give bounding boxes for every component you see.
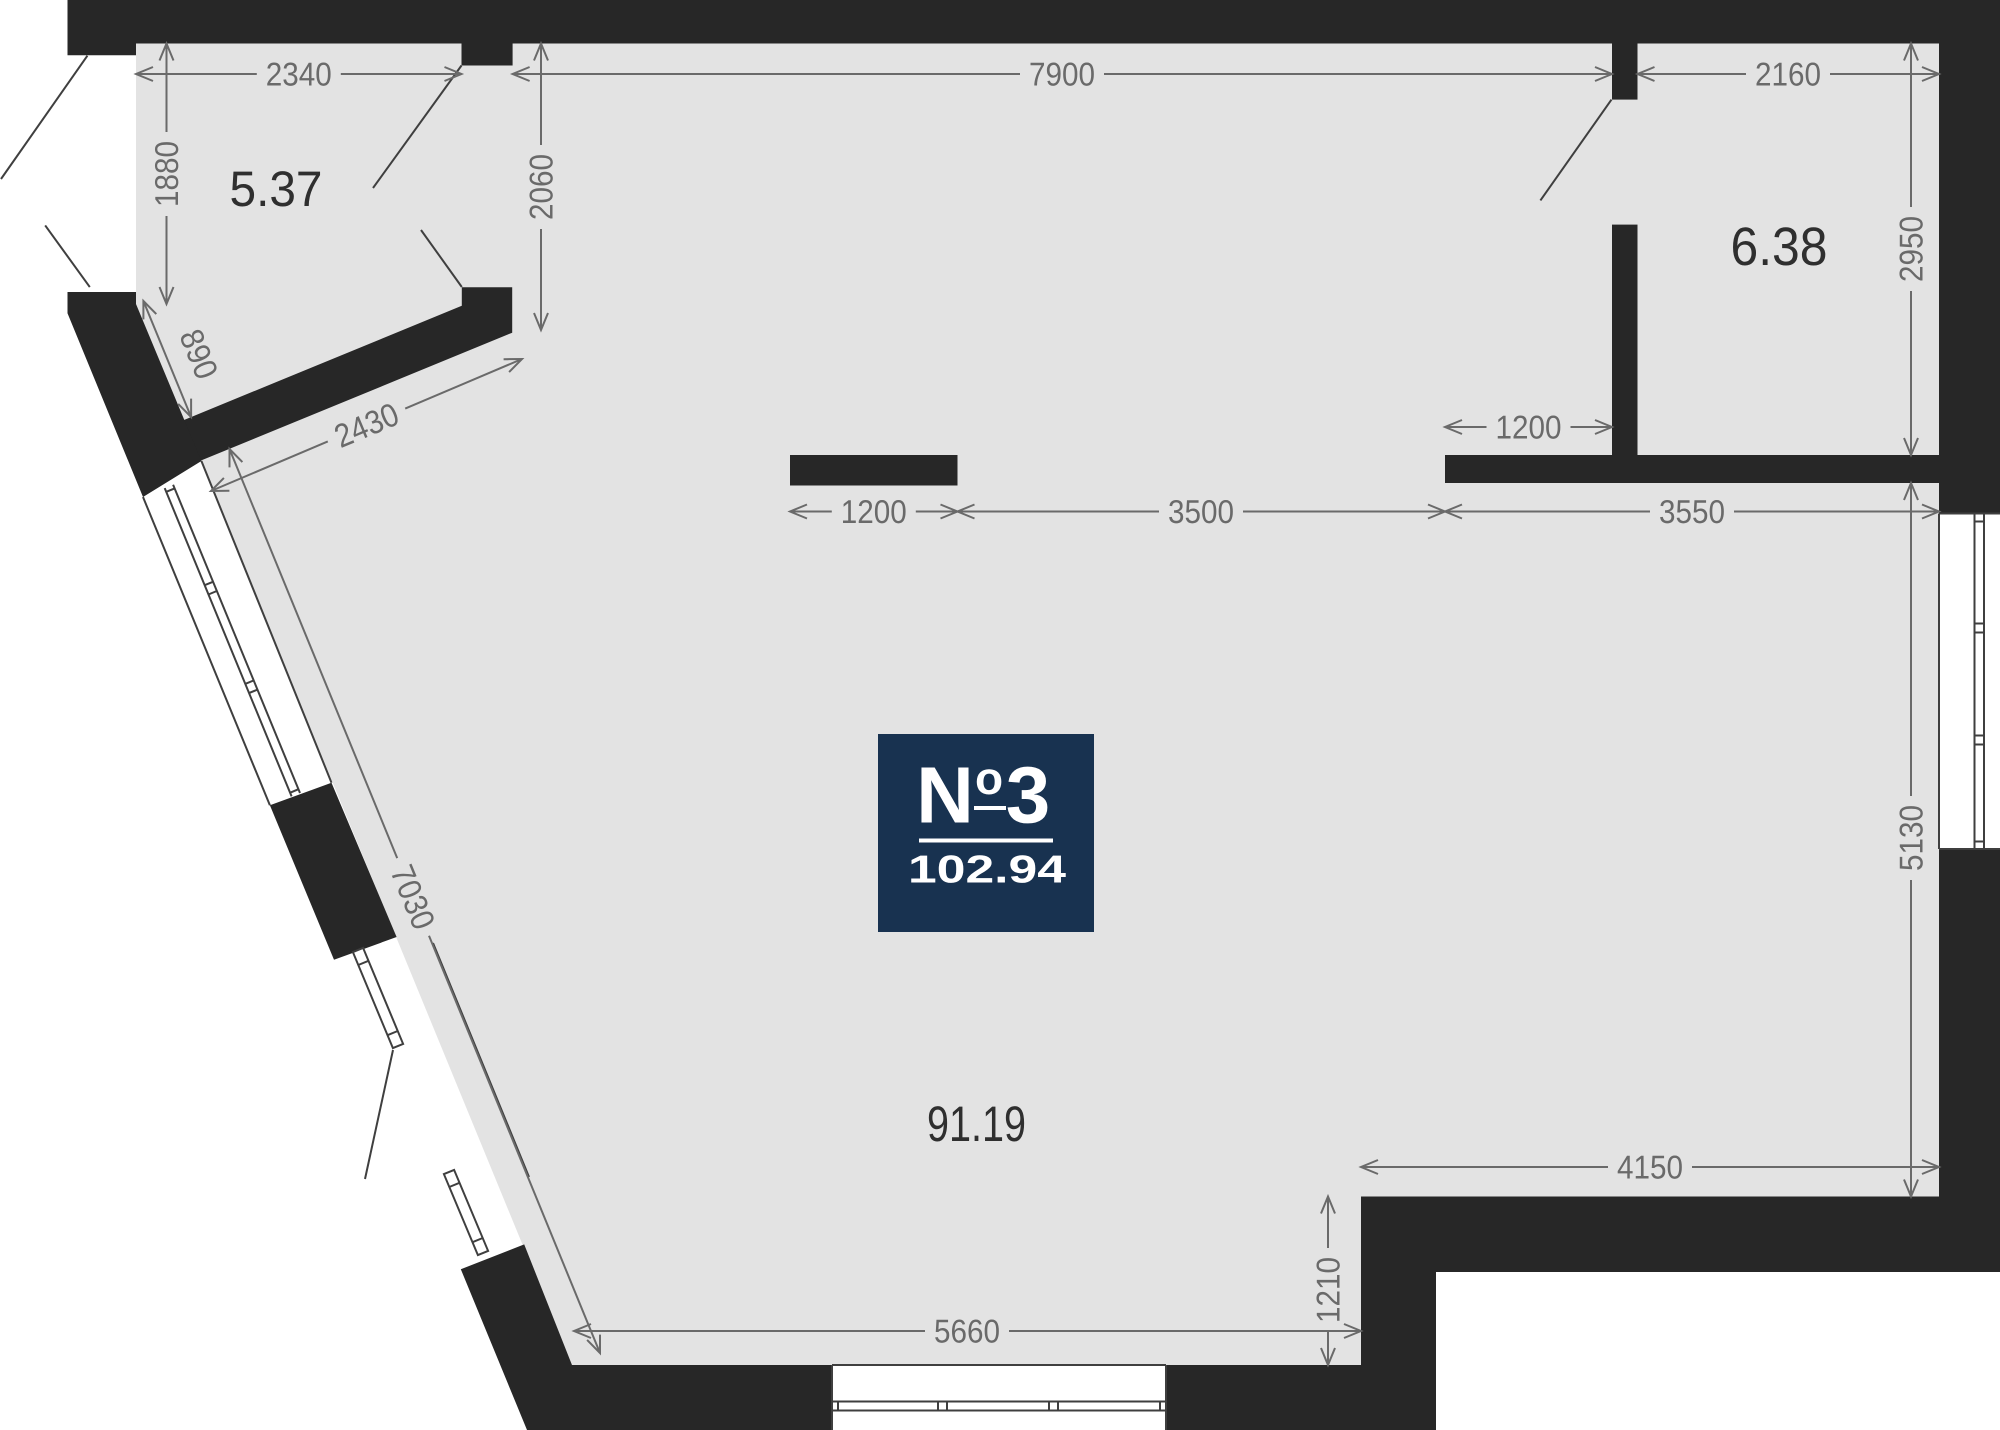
svg-text:1200: 1200 [1496, 409, 1562, 446]
svg-text:5130: 5130 [1893, 805, 1930, 871]
svg-text:7900: 7900 [1029, 56, 1095, 93]
svg-text:1200: 1200 [841, 493, 907, 530]
svg-text:o: o [975, 752, 1003, 804]
svg-text:5.37: 5.37 [230, 161, 323, 217]
svg-text:2340: 2340 [266, 56, 332, 93]
svg-text:3500: 3500 [1168, 493, 1234, 530]
svg-text:5660: 5660 [934, 1313, 1000, 1350]
svg-text:4150: 4150 [1617, 1149, 1683, 1186]
svg-text:2950: 2950 [1893, 216, 1930, 282]
svg-text:2160: 2160 [1755, 56, 1821, 93]
svg-text:N: N [916, 751, 974, 840]
svg-text:3550: 3550 [1659, 493, 1725, 530]
svg-text:2060: 2060 [523, 154, 560, 220]
svg-text:6.38: 6.38 [1731, 217, 1828, 277]
svg-text:102.94: 102.94 [908, 849, 1066, 892]
svg-text:1880: 1880 [148, 141, 185, 207]
svg-text:1210: 1210 [1310, 1257, 1347, 1323]
svg-text:3: 3 [1006, 751, 1051, 840]
svg-text:91.19: 91.19 [927, 1096, 1026, 1152]
